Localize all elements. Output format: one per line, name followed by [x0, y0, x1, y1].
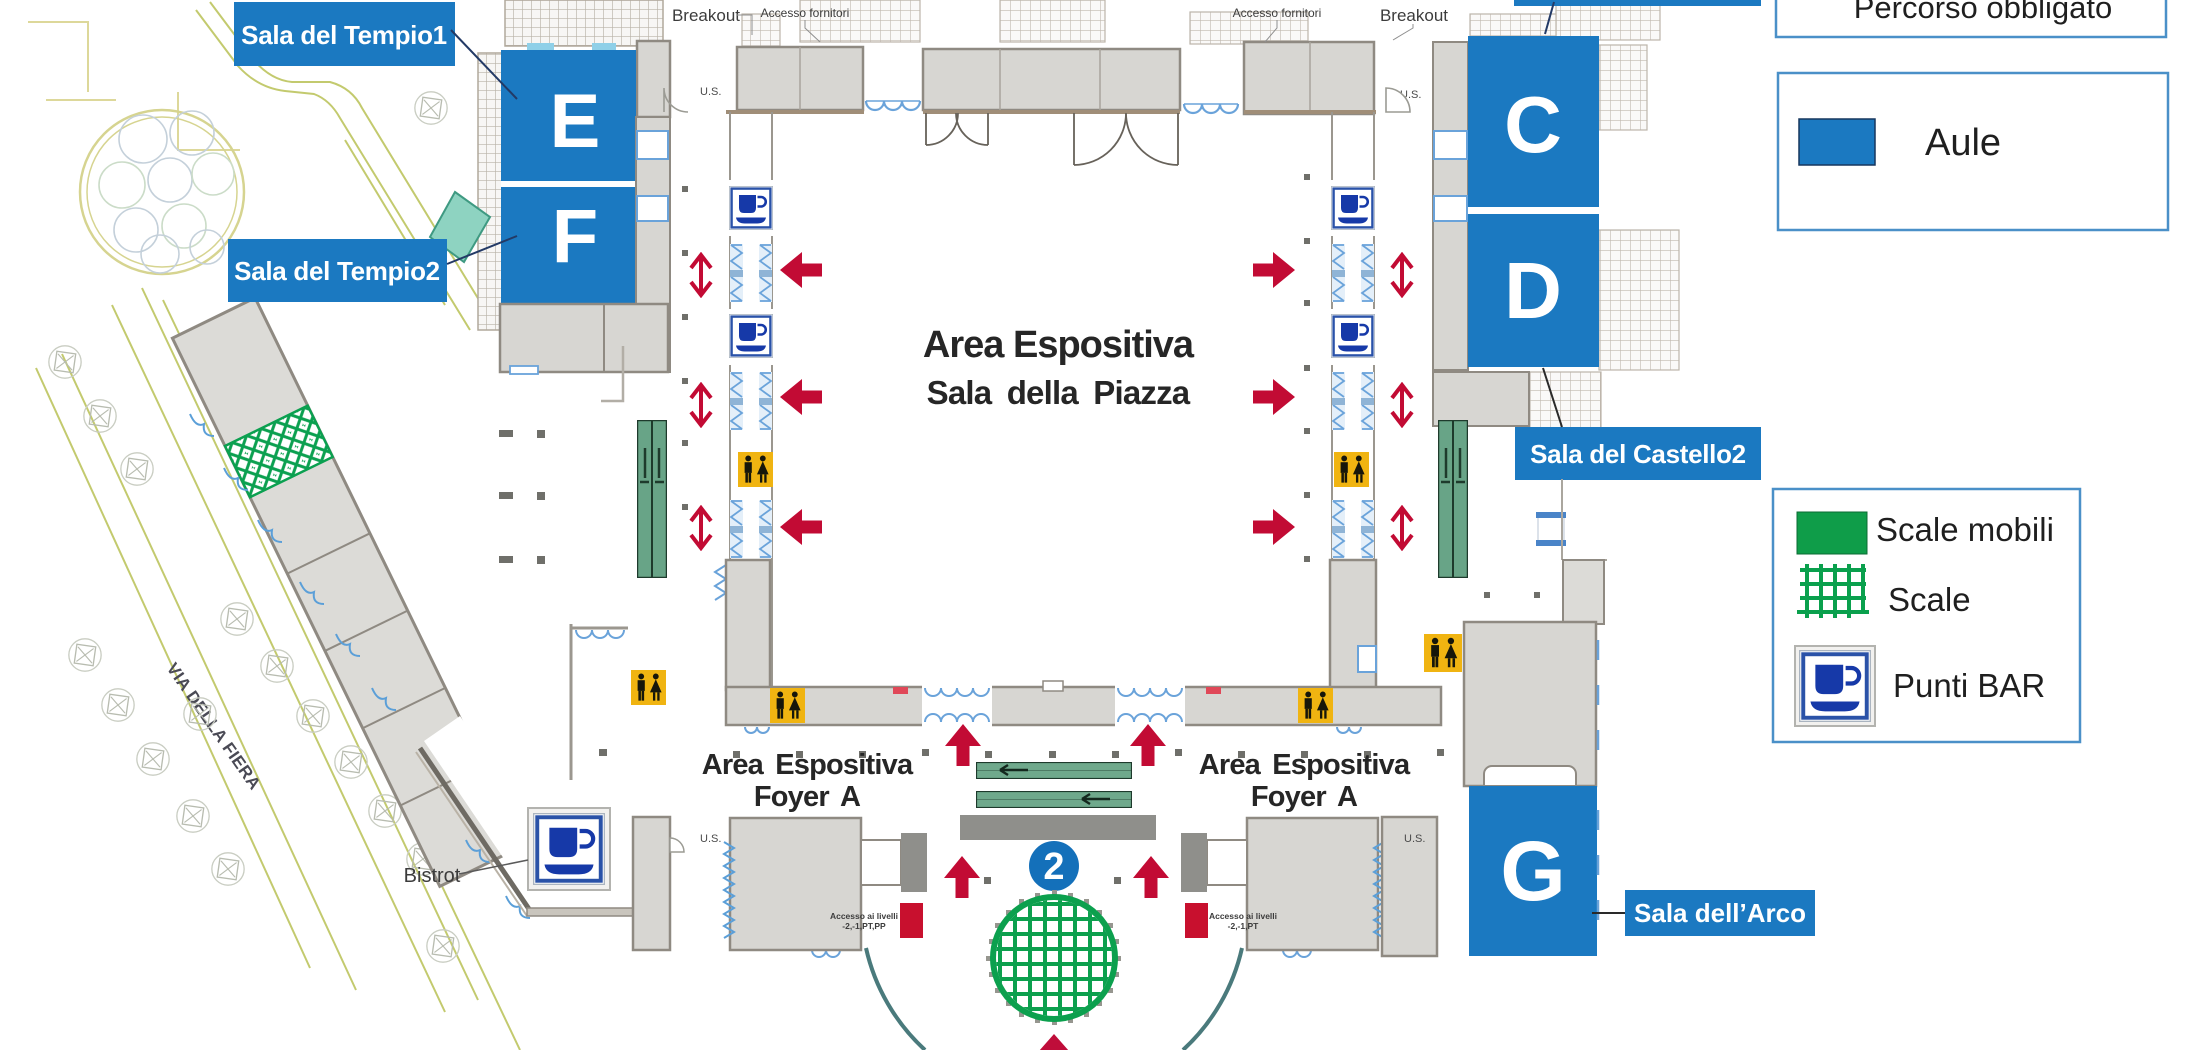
- svg-text:Bistrot: Bistrot: [404, 865, 461, 887]
- svg-text:Foyer A: Foyer A: [754, 781, 861, 813]
- svg-text:Area Espositiva: Area Espositiva: [702, 749, 914, 781]
- svg-text:Foyer A: Foyer A: [1251, 781, 1358, 813]
- svg-text:2: 2: [1043, 846, 1064, 888]
- svg-text:U.S.: U.S.: [1404, 833, 1425, 845]
- svg-text:Accesso ai livelli: Accesso ai livelli: [1209, 911, 1277, 921]
- svg-text:Accesso fornitori: Accesso fornitori: [1233, 6, 1322, 20]
- svg-text:U.S.: U.S.: [700, 86, 721, 98]
- svg-text:Sala del Castello2: Sala del Castello2: [1530, 439, 1746, 469]
- svg-text:Punti BAR: Punti BAR: [1893, 667, 2045, 704]
- svg-text:Area Espositiva: Area Espositiva: [1199, 749, 1411, 781]
- svg-text:F: F: [552, 194, 598, 279]
- svg-text:Aule: Aule: [1925, 122, 2001, 164]
- svg-text:Sala dell’Arco: Sala dell’Arco: [1634, 898, 1806, 928]
- svg-text:Accesso ai livelli: Accesso ai livelli: [830, 911, 898, 921]
- svg-text:-2,-1,PT,PP: -2,-1,PT,PP: [842, 921, 886, 931]
- svg-text:Breakout: Breakout: [1380, 6, 1448, 25]
- svg-text:E: E: [550, 79, 601, 164]
- svg-text:C: C: [1504, 80, 1562, 169]
- svg-text:Accesso fornitori: Accesso fornitori: [761, 6, 850, 20]
- svg-text:Sala del Tempio2: Sala del Tempio2: [234, 256, 440, 286]
- svg-text:Breakout: Breakout: [672, 6, 740, 25]
- svg-text:U.S.: U.S.: [700, 833, 721, 845]
- svg-text:G: G: [1500, 824, 1565, 918]
- svg-text:Sala della Piazza: Sala della Piazza: [927, 374, 1191, 411]
- svg-text:Scale mobili: Scale mobili: [1876, 511, 2054, 548]
- svg-text:D: D: [1504, 246, 1562, 335]
- svg-text:Percorso obbligato: Percorso obbligato: [1854, 0, 2113, 25]
- svg-text:Sala del Tempio1: Sala del Tempio1: [241, 20, 447, 50]
- svg-text:Area Espositiva: Area Espositiva: [923, 324, 1195, 366]
- svg-text:-2,-1,PT: -2,-1,PT: [1228, 921, 1260, 931]
- svg-text:Scale: Scale: [1888, 581, 1971, 618]
